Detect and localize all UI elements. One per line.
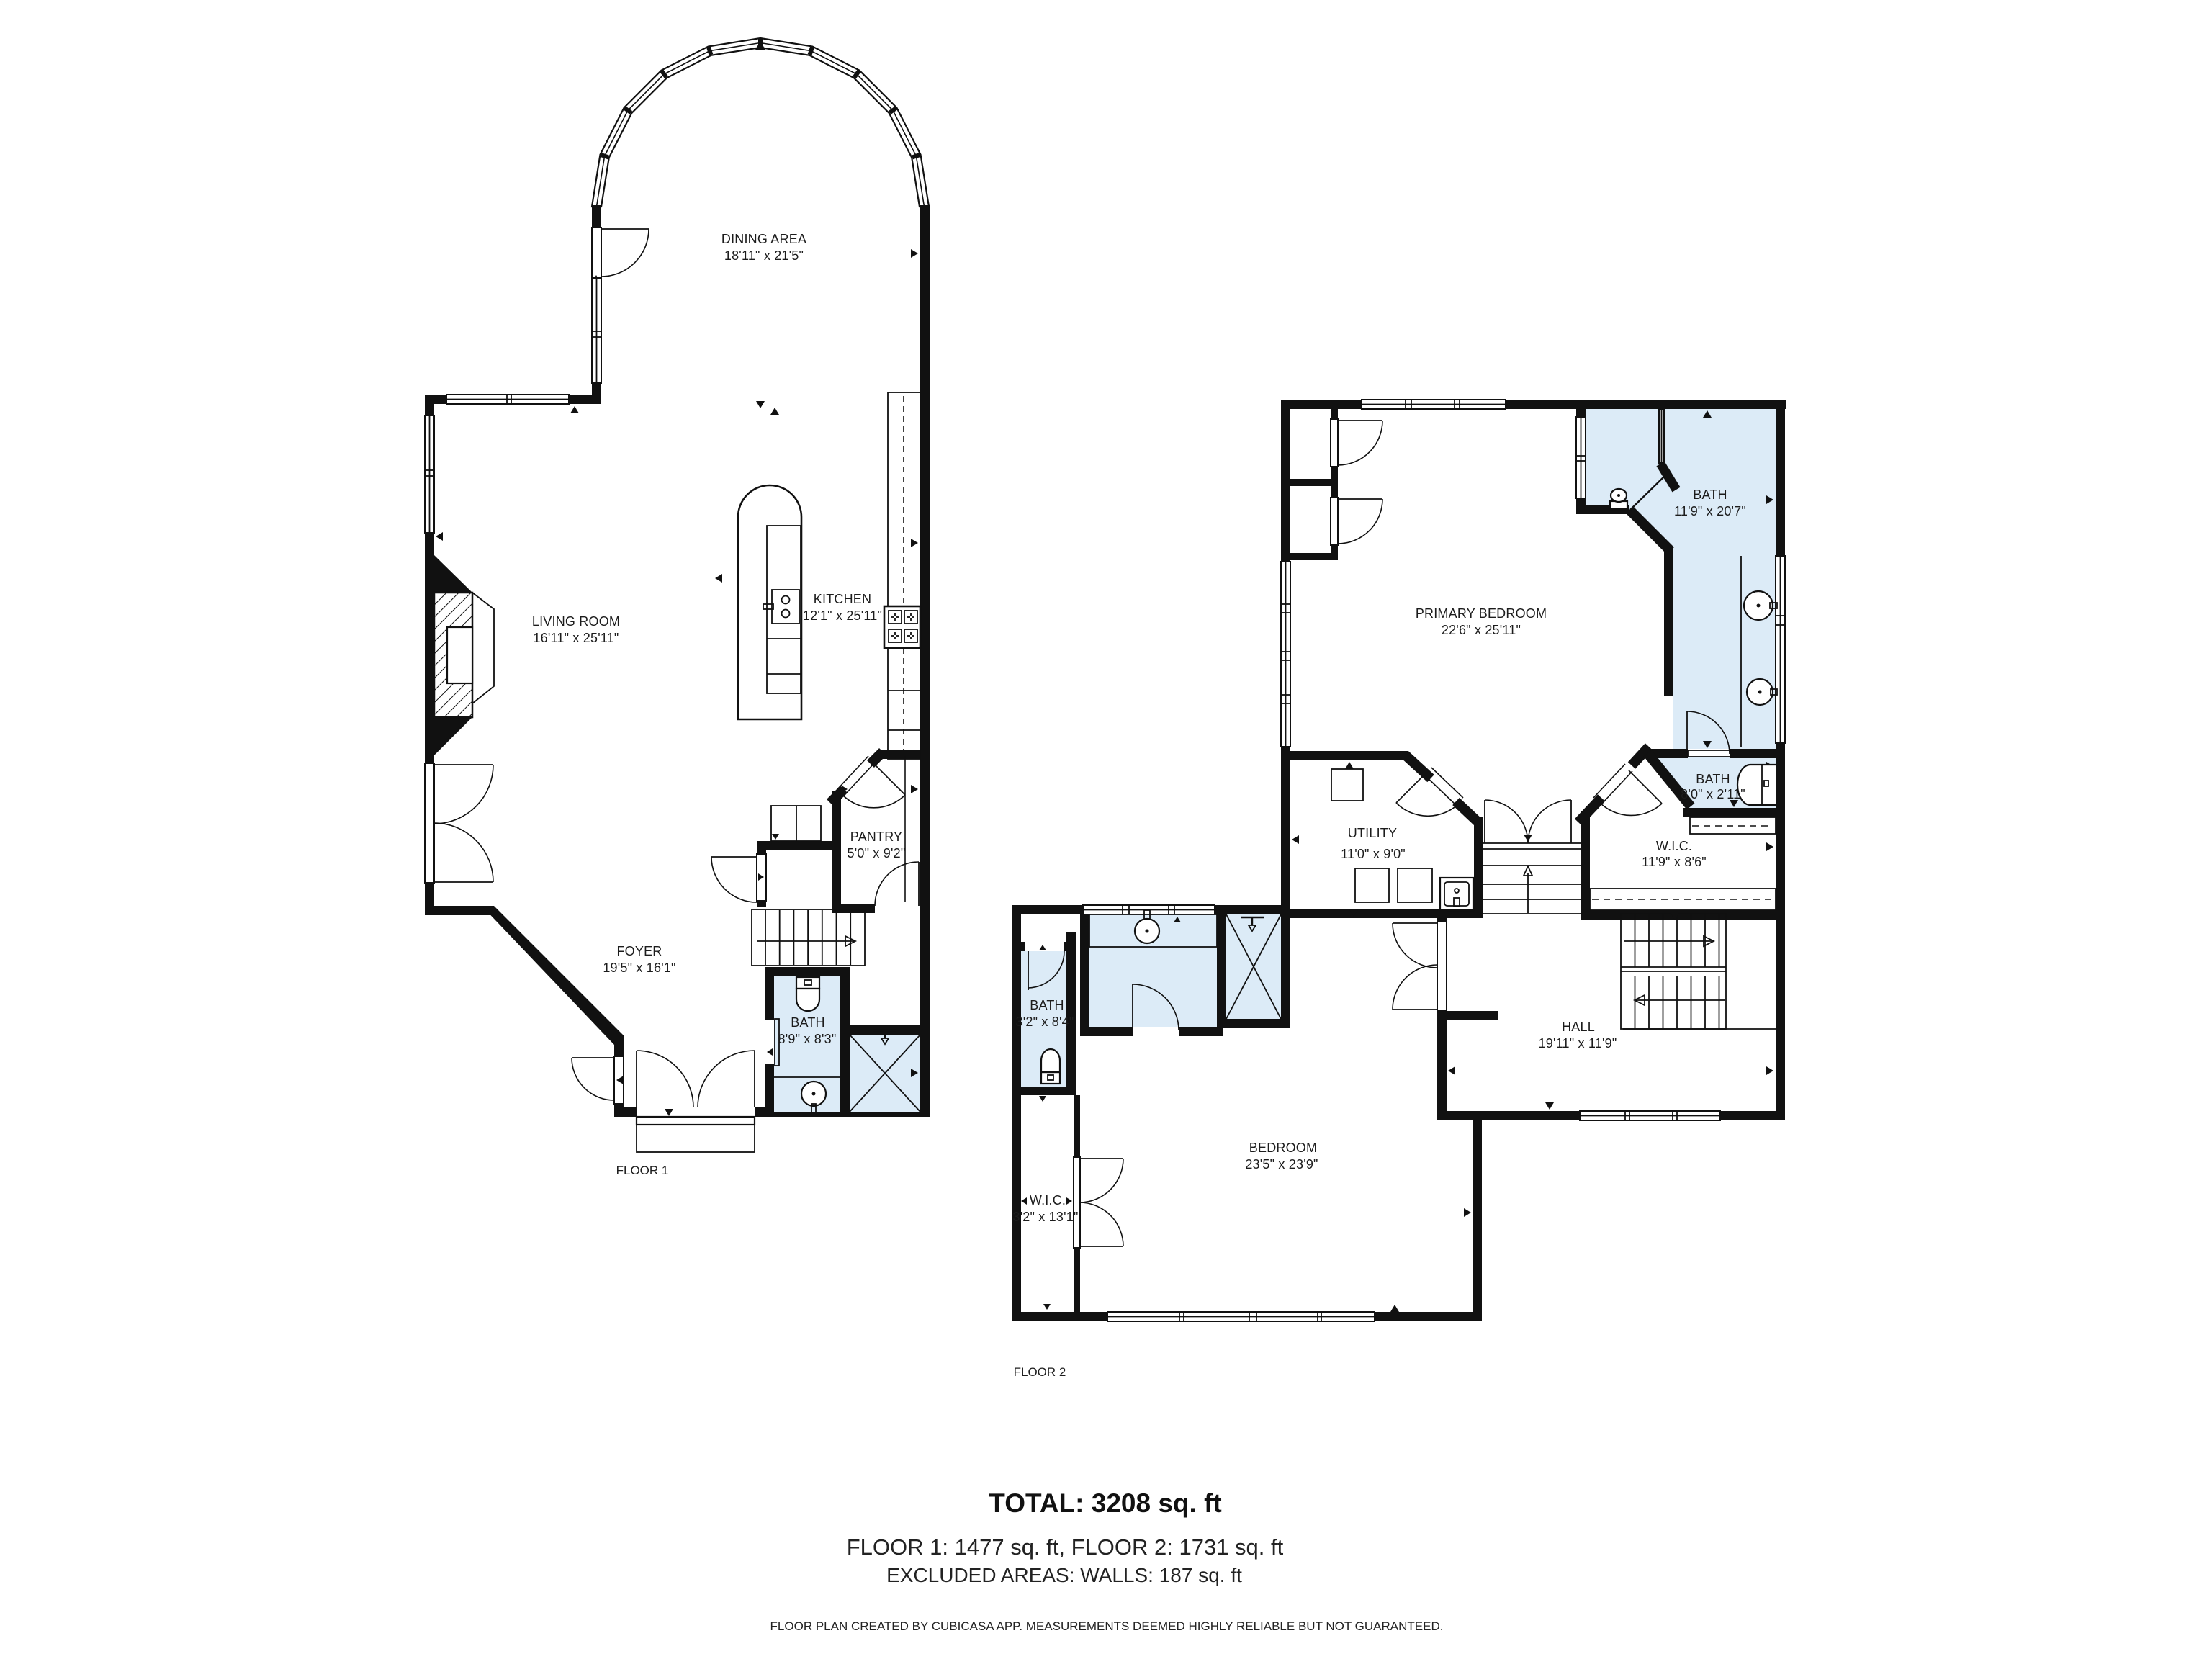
svg-text:TOTAL: 3208 sq. ft: TOTAL: 3208 sq. ft: [989, 1488, 1221, 1518]
svg-text:BATH: BATH: [1696, 772, 1730, 786]
svg-text:11'0" x 9'0": 11'0" x 9'0": [1341, 847, 1406, 861]
svg-text:11'9" x 20'7": 11'9" x 20'7": [1674, 504, 1746, 518]
svg-text:8'0" x 2'11": 8'0" x 2'11": [1681, 787, 1745, 801]
svg-text:UTILITY: UTILITY: [1348, 826, 1397, 840]
svg-text:BEDROOM: BEDROOM: [1249, 1141, 1317, 1155]
svg-text:BATH: BATH: [791, 1015, 824, 1030]
svg-text:3'2" x 8'4": 3'2" x 8'4": [1016, 1015, 1074, 1029]
svg-text:12'1" x 25'11": 12'1" x 25'11": [803, 608, 882, 623]
svg-text:19'5" x 16'1": 19'5" x 16'1": [603, 961, 675, 975]
svg-text:KITCHEN: KITCHEN: [814, 592, 871, 606]
svg-text:11'9" x 8'6": 11'9" x 8'6": [1642, 855, 1707, 869]
svg-text:DINING AREA: DINING AREA: [721, 232, 806, 246]
svg-text:LIVING ROOM: LIVING ROOM: [532, 614, 620, 629]
svg-text:23'5" x 23'9": 23'5" x 23'9": [1245, 1157, 1318, 1172]
svg-text:FOYER: FOYER: [616, 944, 662, 958]
svg-text:FLOOR 2: FLOOR 2: [1014, 1365, 1066, 1379]
svg-text:W.I.C.: W.I.C.: [1656, 839, 1692, 853]
svg-text:18'11" x 21'5": 18'11" x 21'5": [724, 248, 804, 263]
svg-text:EXCLUDED AREAS: WALLS: 187 sq.: EXCLUDED AREAS: WALLS: 187 sq. ft: [886, 1564, 1242, 1586]
svg-text:FLOOR 1: 1477 sq. ft, FLOOR 2:: FLOOR 1: 1477 sq. ft, FLOOR 2: 1731 sq. …: [847, 1534, 1284, 1560]
svg-text:22'6" x 25'11": 22'6" x 25'11": [1442, 623, 1521, 637]
svg-text:PRIMARY BEDROOM: PRIMARY BEDROOM: [1416, 606, 1547, 621]
svg-text:PANTRY: PANTRY: [850, 829, 903, 844]
svg-text:BATH: BATH: [1030, 998, 1064, 1012]
svg-text:8'9" x 8'3": 8'9" x 8'3": [778, 1032, 837, 1046]
svg-text:19'11" x 11'9": 19'11" x 11'9": [1539, 1036, 1617, 1051]
svg-text:FLOOR 1: FLOOR 1: [616, 1164, 669, 1177]
svg-text:5'0" x 9'2": 5'0" x 9'2": [848, 846, 906, 860]
svg-text:FLOOR PLAN CREATED BY CUBICASA: FLOOR PLAN CREATED BY CUBICASA APP. MEAS…: [770, 1619, 1444, 1633]
svg-text:BATH: BATH: [1693, 487, 1727, 502]
svg-text:HALL: HALL: [1562, 1020, 1595, 1034]
svg-text:W.I.C.: W.I.C.: [1030, 1193, 1066, 1208]
svg-text:3'2" x 13'1": 3'2" x 13'1": [1012, 1210, 1078, 1224]
svg-text:16'11" x 25'11": 16'11" x 25'11": [533, 631, 619, 645]
